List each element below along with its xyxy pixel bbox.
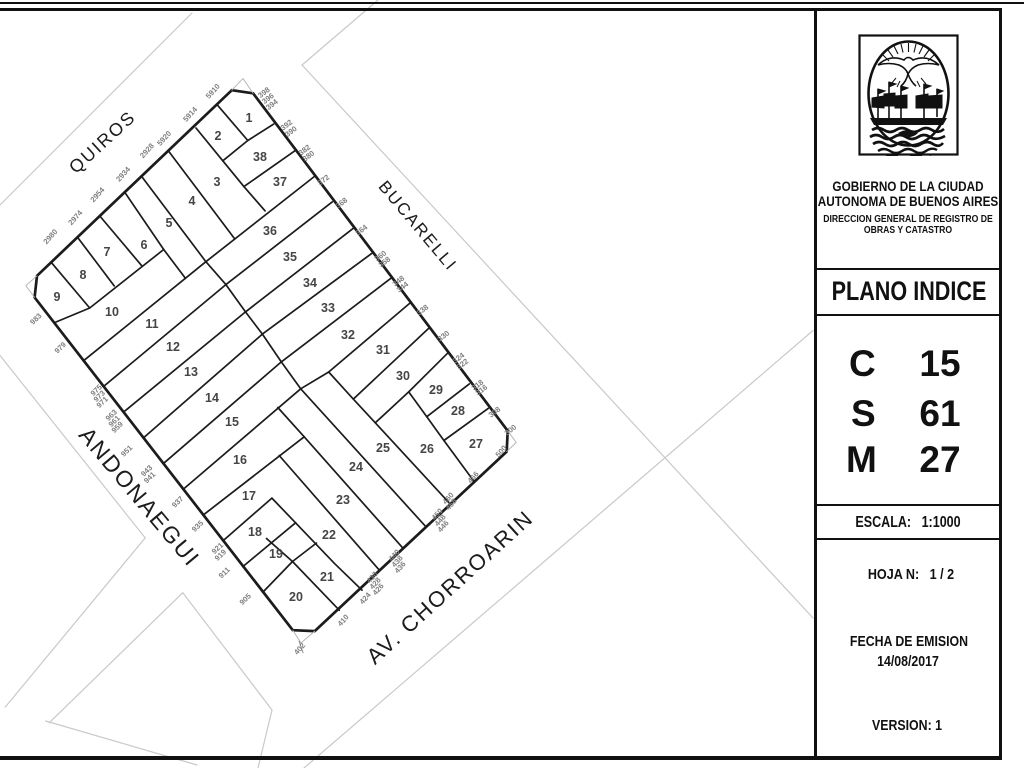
svg-text:372: 372 bbox=[316, 173, 332, 188]
svg-text:34: 34 bbox=[303, 276, 317, 290]
svg-text:12: 12 bbox=[166, 340, 180, 354]
svg-text:9: 9 bbox=[54, 290, 61, 304]
svg-text:38: 38 bbox=[253, 150, 267, 164]
svg-text:979: 979 bbox=[53, 340, 68, 355]
svg-text:4: 4 bbox=[189, 194, 196, 208]
svg-text:5920: 5920 bbox=[155, 129, 173, 148]
svg-text:15: 15 bbox=[225, 415, 239, 429]
svg-text:37: 37 bbox=[273, 175, 287, 189]
svg-text:3: 3 bbox=[214, 175, 221, 189]
svg-text:6: 6 bbox=[141, 238, 148, 252]
svg-text:30: 30 bbox=[396, 369, 410, 383]
svg-text:23: 23 bbox=[336, 493, 350, 507]
svg-text:31: 31 bbox=[376, 343, 390, 357]
svg-text:QUIROS: QUIROS bbox=[65, 107, 140, 178]
svg-text:330: 330 bbox=[436, 329, 452, 344]
svg-text:5910: 5910 bbox=[204, 82, 222, 101]
svg-text:13: 13 bbox=[184, 365, 198, 379]
svg-text:17: 17 bbox=[242, 489, 256, 503]
svg-text:AV. CHORROARIN: AV. CHORROARIN bbox=[362, 505, 539, 669]
svg-text:2928: 2928 bbox=[138, 141, 156, 160]
svg-text:937: 937 bbox=[170, 494, 185, 509]
svg-text:22: 22 bbox=[322, 528, 336, 542]
svg-text:8: 8 bbox=[80, 268, 87, 282]
svg-text:7: 7 bbox=[104, 245, 111, 259]
svg-text:2974: 2974 bbox=[66, 208, 85, 227]
svg-text:1: 1 bbox=[246, 111, 253, 125]
svg-text:2954: 2954 bbox=[88, 185, 107, 204]
svg-text:983: 983 bbox=[28, 311, 43, 326]
svg-text:905: 905 bbox=[238, 591, 254, 607]
svg-text:24: 24 bbox=[349, 460, 363, 474]
svg-text:32: 32 bbox=[341, 328, 355, 342]
svg-text:364: 364 bbox=[354, 222, 370, 237]
svg-text:911: 911 bbox=[217, 565, 233, 581]
svg-text:10: 10 bbox=[105, 305, 119, 319]
svg-text:16: 16 bbox=[233, 453, 247, 467]
svg-text:29: 29 bbox=[429, 383, 443, 397]
svg-text:35: 35 bbox=[283, 250, 297, 264]
svg-text:368: 368 bbox=[334, 196, 350, 211]
svg-text:28: 28 bbox=[451, 404, 465, 418]
svg-text:33: 33 bbox=[321, 301, 335, 315]
svg-text:338: 338 bbox=[415, 303, 431, 318]
svg-text:11: 11 bbox=[145, 317, 158, 331]
svg-text:18: 18 bbox=[248, 525, 262, 539]
svg-text:36: 36 bbox=[263, 224, 277, 238]
svg-text:935: 935 bbox=[190, 518, 206, 534]
svg-text:402: 402 bbox=[292, 641, 307, 656]
svg-text:410: 410 bbox=[336, 613, 351, 628]
svg-text:2: 2 bbox=[215, 129, 222, 143]
svg-text:25: 25 bbox=[376, 441, 390, 455]
svg-text:27: 27 bbox=[469, 437, 483, 451]
svg-text:20: 20 bbox=[289, 590, 303, 604]
svg-text:2934: 2934 bbox=[114, 164, 133, 183]
svg-text:5: 5 bbox=[166, 216, 173, 230]
svg-text:26: 26 bbox=[420, 442, 434, 456]
svg-text:19: 19 bbox=[269, 547, 283, 561]
svg-text:300: 300 bbox=[503, 423, 519, 438]
svg-text:21: 21 bbox=[320, 570, 334, 584]
svg-text:2980: 2980 bbox=[41, 227, 59, 246]
svg-text:14: 14 bbox=[205, 391, 219, 405]
svg-text:5914: 5914 bbox=[181, 104, 200, 123]
